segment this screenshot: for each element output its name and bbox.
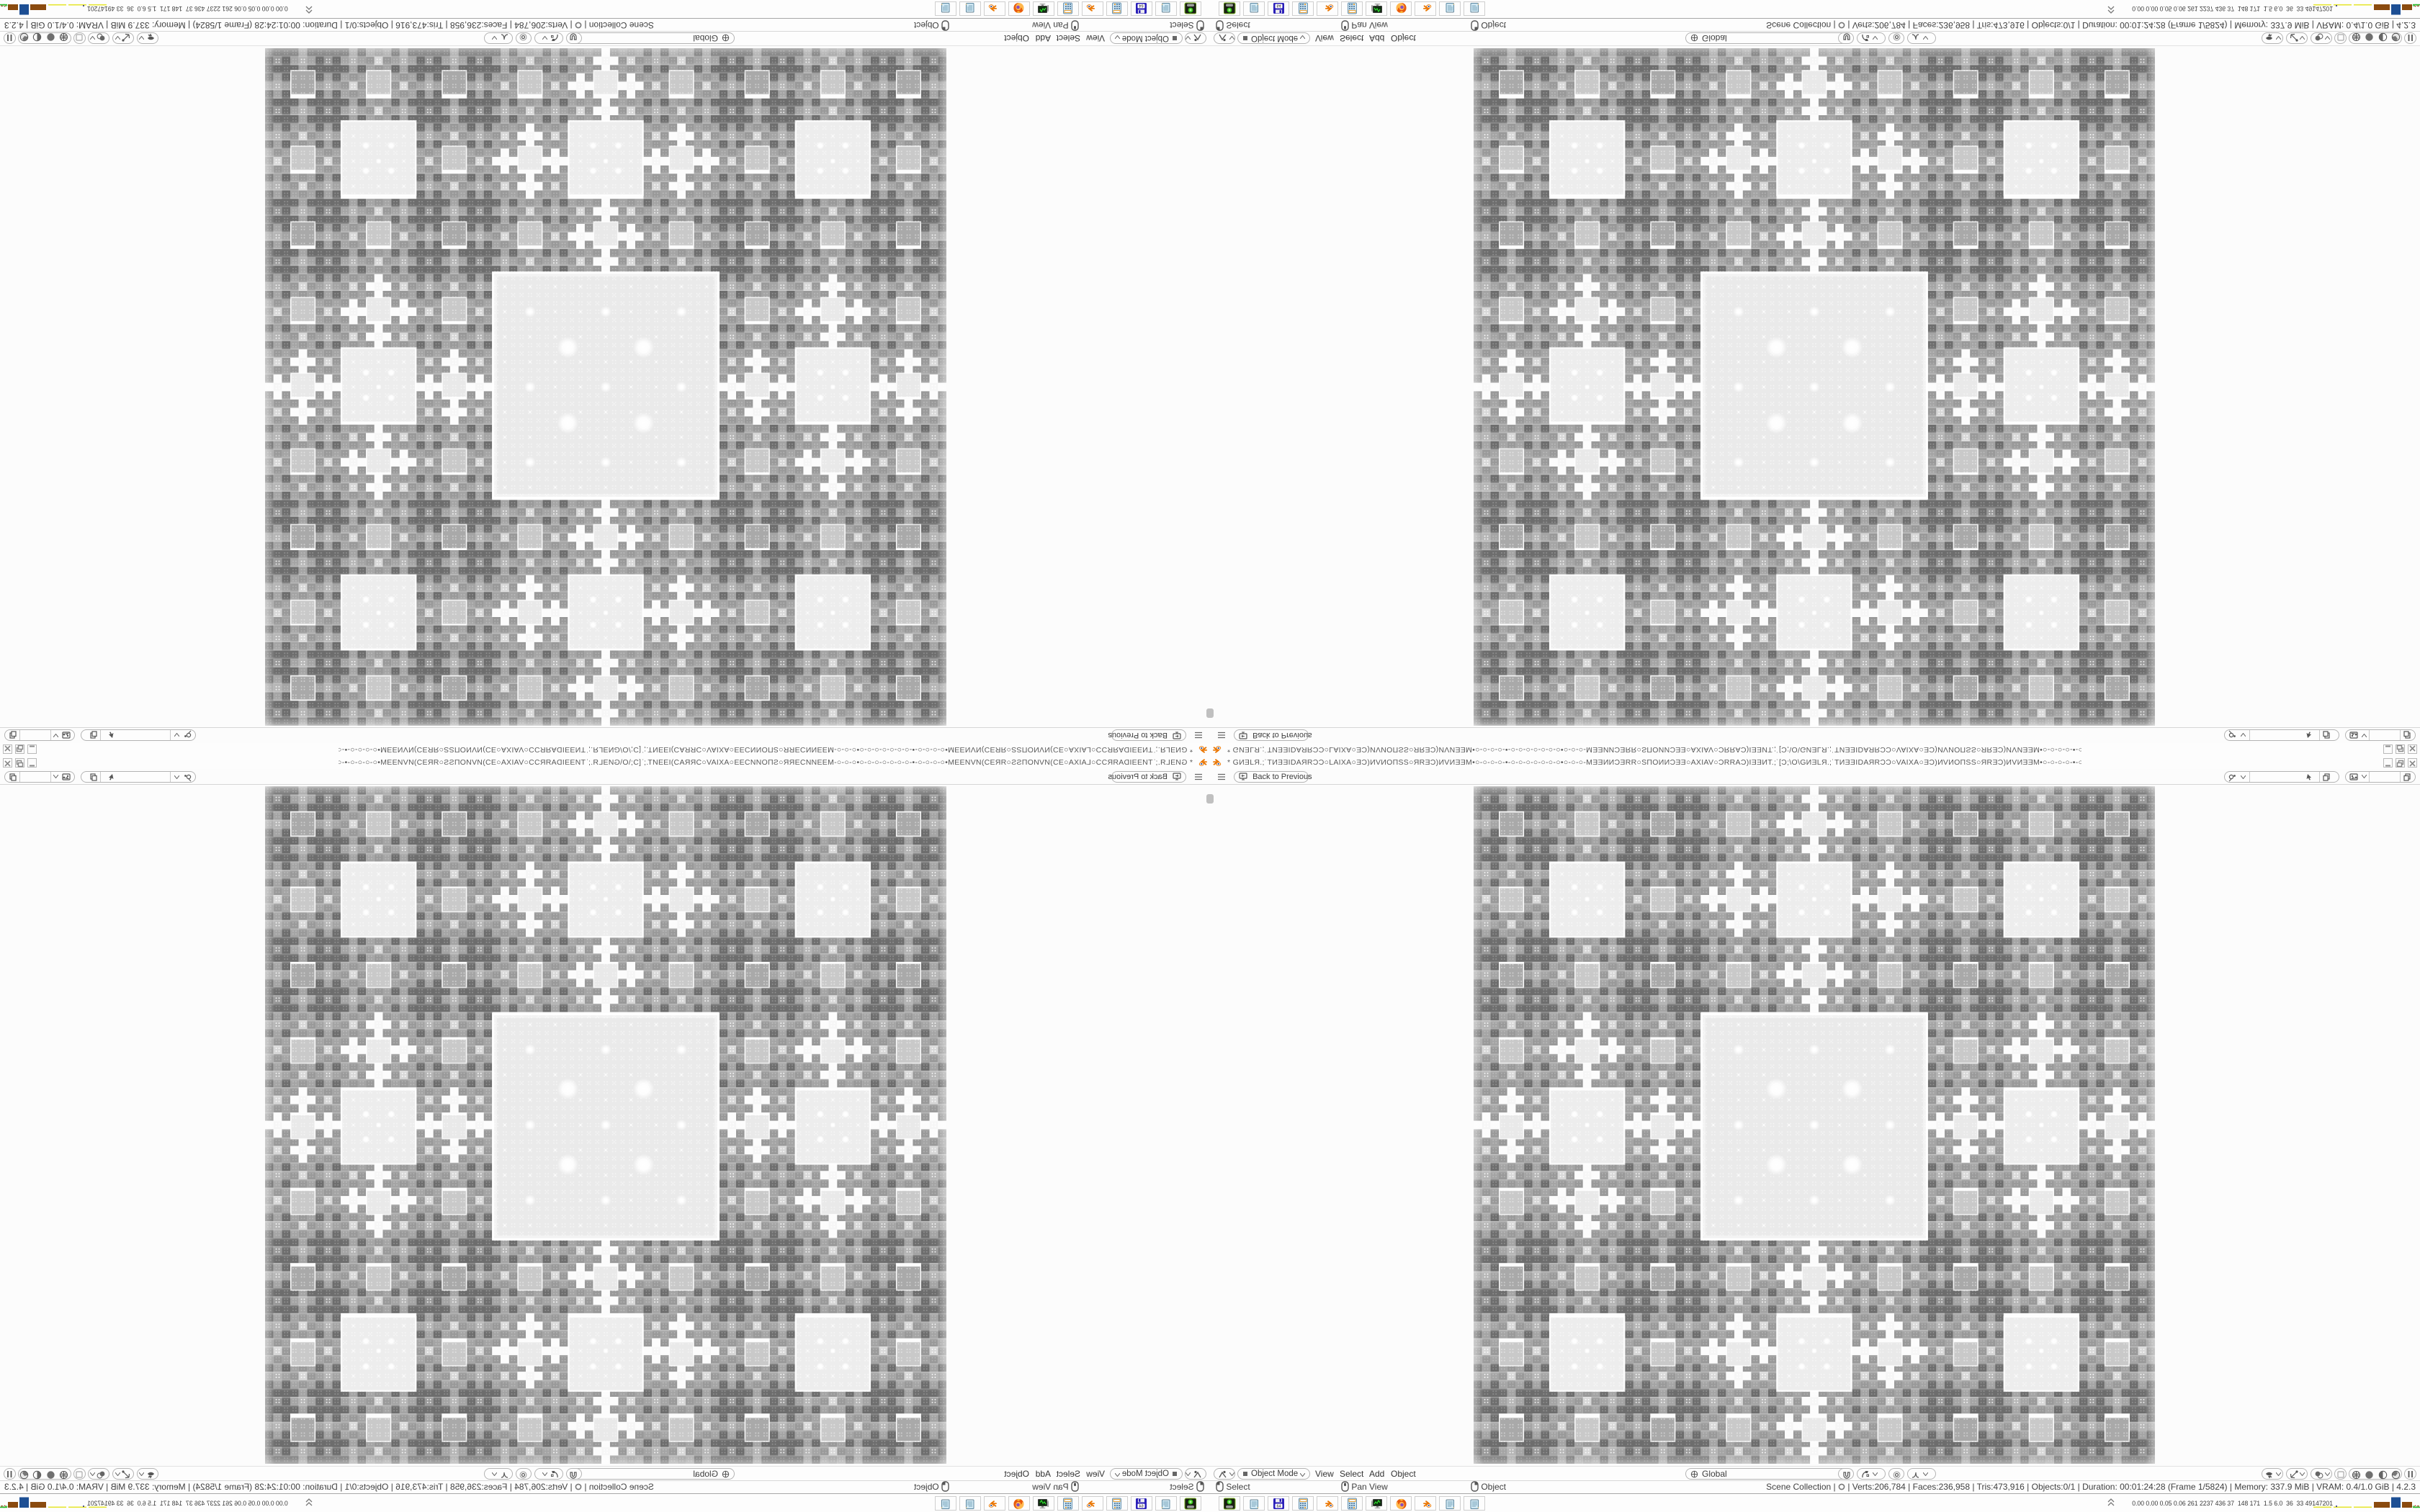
svg-text:64: 64 bbox=[1139, 1505, 1143, 1509]
svg-text:64: 64 bbox=[1276, 3, 1281, 7]
svg-text:64: 64 bbox=[1139, 3, 1143, 7]
svg-text:64: 64 bbox=[1276, 1505, 1281, 1509]
